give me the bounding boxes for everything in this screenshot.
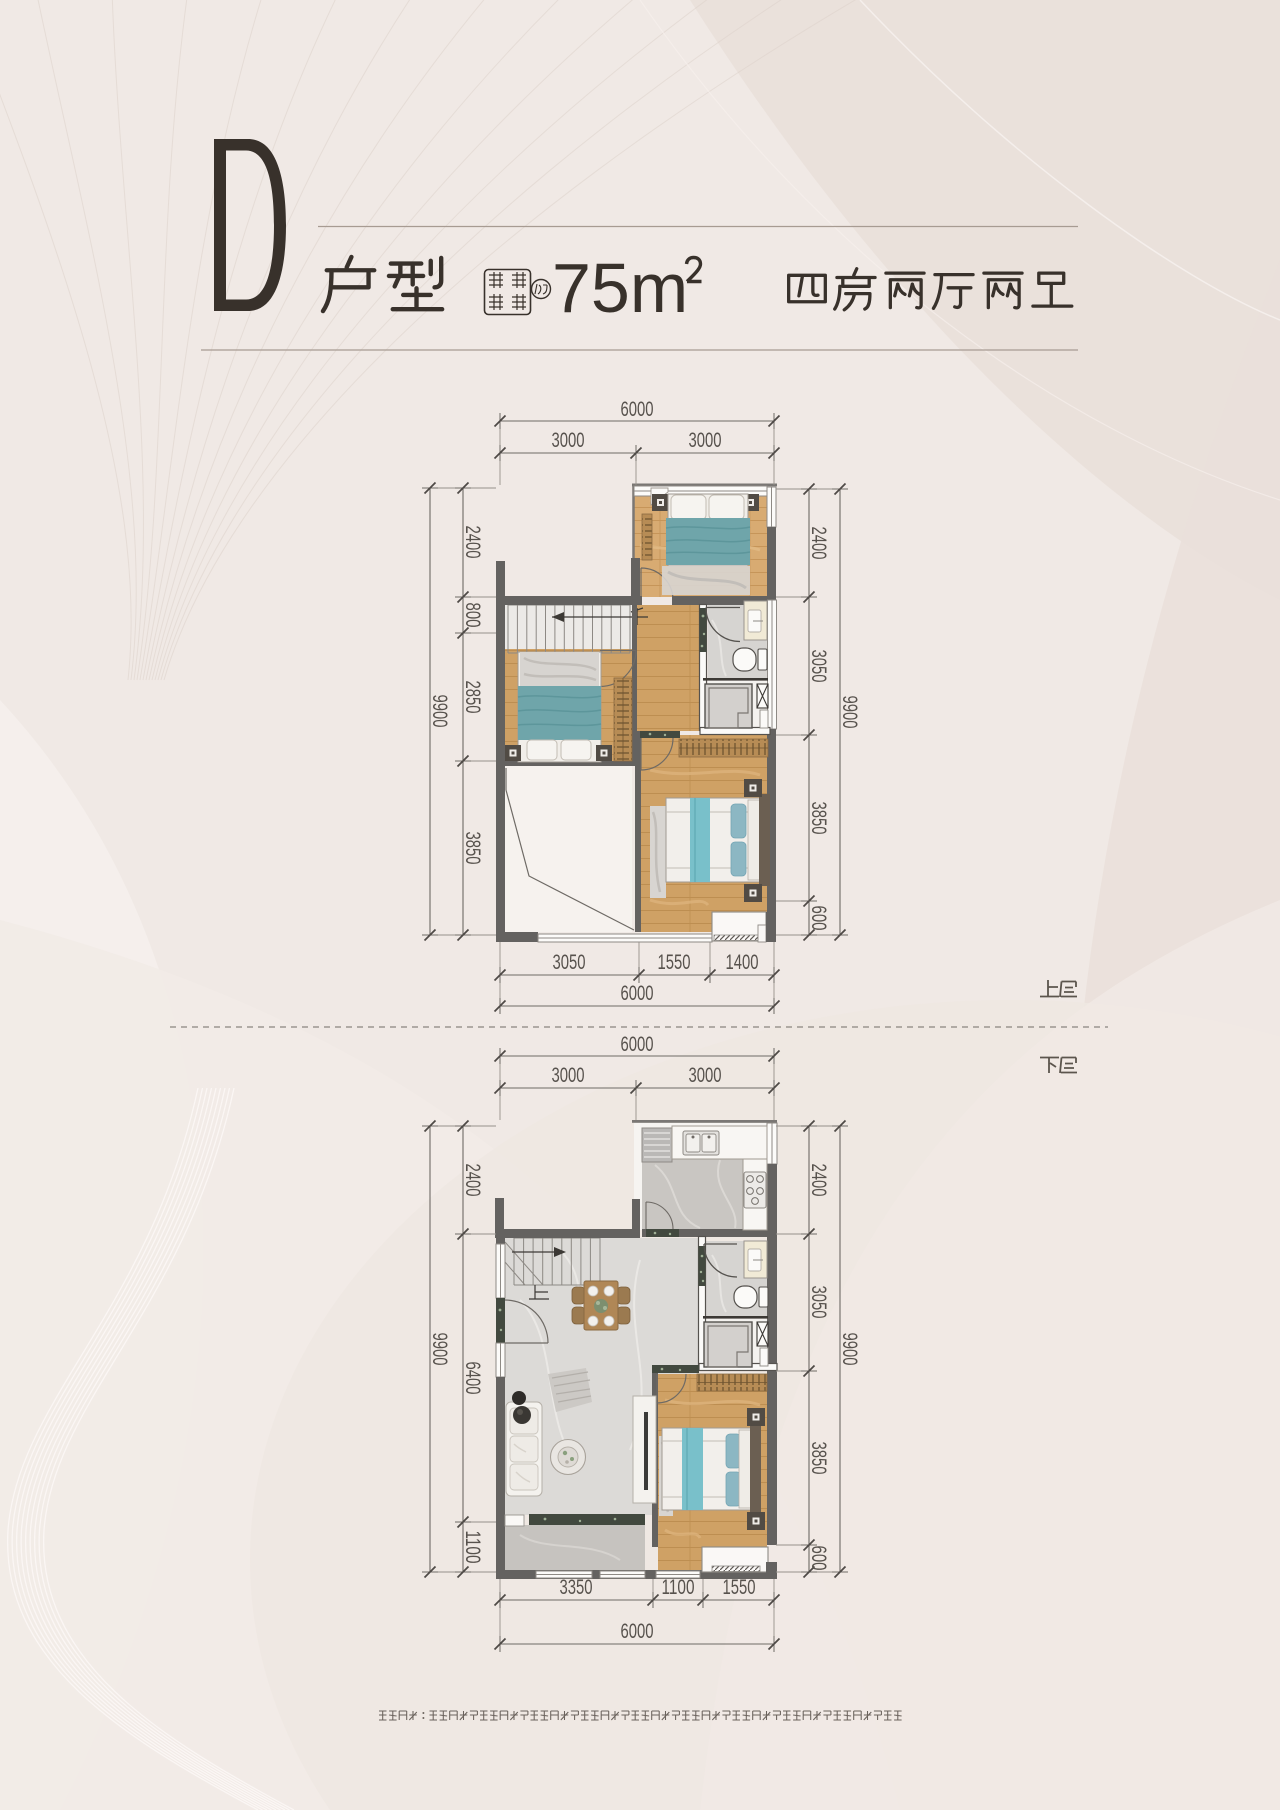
svg-text:800: 800 (461, 603, 484, 628)
svg-text:3000: 3000 (689, 1064, 722, 1087)
svg-text:600: 600 (807, 1546, 830, 1571)
svg-text:3350: 3350 (560, 1576, 593, 1599)
svg-text:1550: 1550 (658, 951, 691, 974)
svg-text:9900: 9900 (838, 696, 861, 729)
svg-text:3000: 3000 (552, 1064, 585, 1087)
svg-text:3000: 3000 (689, 429, 722, 452)
svg-text:3050: 3050 (807, 650, 830, 683)
svg-text:3850: 3850 (807, 802, 830, 835)
svg-text:3850: 3850 (461, 832, 484, 865)
svg-text:1400: 1400 (726, 951, 759, 974)
svg-text:2850: 2850 (461, 681, 484, 714)
svg-text:3050: 3050 (807, 1286, 830, 1319)
svg-text:2400: 2400 (461, 526, 484, 559)
svg-text:9900: 9900 (428, 1333, 451, 1366)
svg-text:6000: 6000 (621, 1033, 654, 1056)
svg-text:2400: 2400 (461, 1164, 484, 1197)
svg-text:6000: 6000 (621, 1620, 654, 1643)
svg-text:6000: 6000 (621, 398, 654, 421)
svg-text:1100: 1100 (461, 1531, 484, 1564)
svg-text:6400: 6400 (461, 1362, 484, 1395)
svg-text:9900: 9900 (838, 1333, 861, 1366)
svg-text:6000: 6000 (621, 982, 654, 1005)
svg-text:3850: 3850 (807, 1442, 830, 1475)
svg-text:2400: 2400 (807, 1164, 830, 1197)
svg-text:2400: 2400 (807, 527, 830, 560)
svg-text:3000: 3000 (552, 429, 585, 452)
svg-text:600: 600 (807, 906, 830, 931)
svg-text:9900: 9900 (428, 695, 451, 728)
svg-text:3050: 3050 (553, 951, 586, 974)
svg-text:1100: 1100 (662, 1576, 695, 1599)
svg-text:75m: 75m (552, 249, 688, 327)
svg-text:1550: 1550 (723, 1576, 756, 1599)
